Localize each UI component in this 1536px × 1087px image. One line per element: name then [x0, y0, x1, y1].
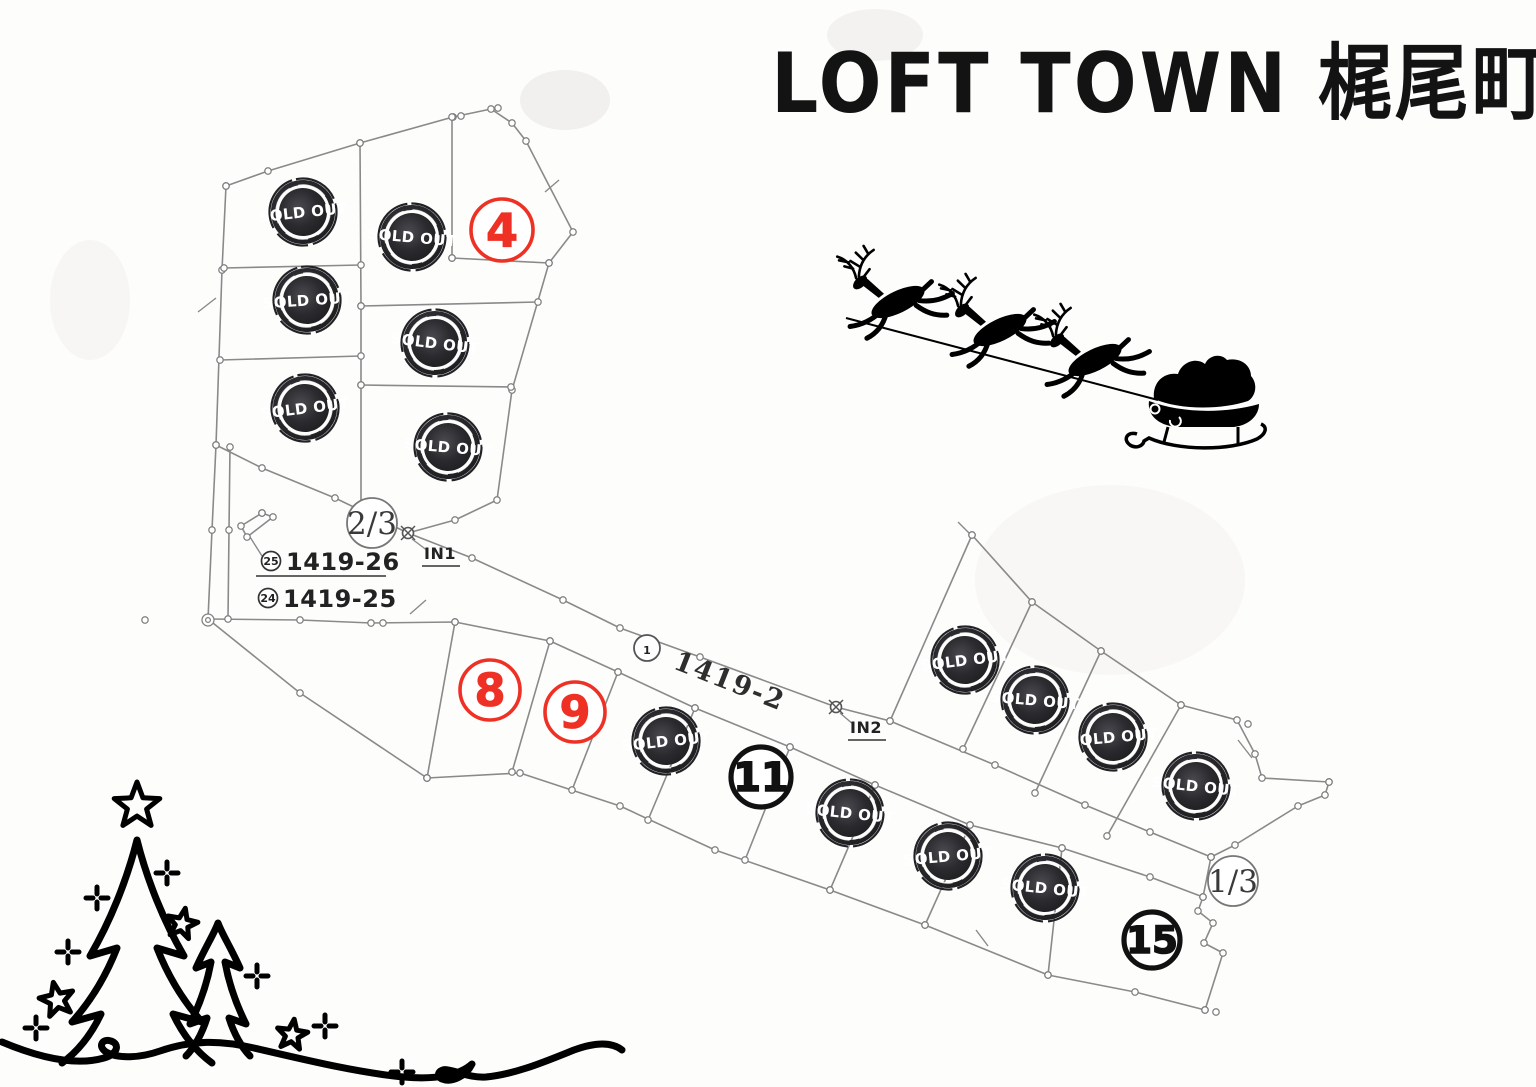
- svg-text:IN2: IN2: [850, 718, 882, 737]
- road-parcel-label: 11419-2: [634, 635, 790, 717]
- sold-out-stamp: SOLD OUT: [1066, 700, 1161, 775]
- sparkle-icon: [25, 1017, 47, 1039]
- flyer-canvas: 2/31/311419-2IN1IN2251419-26241419-25 SO…: [0, 0, 1536, 1087]
- sold-out-stamp: SOLD OUT: [618, 703, 714, 779]
- sold-out-stamp: SOLD OUT: [802, 775, 898, 851]
- star-icon: [278, 1019, 308, 1049]
- sold-out-stamp: SOLD OUT: [387, 304, 484, 381]
- svg-text:1419-2: 1419-2: [669, 646, 789, 718]
- sold-out-stamp: SOLD OUT: [401, 410, 496, 485]
- sold-out-stamp: SOLD OUT: [365, 200, 460, 275]
- sold-out-stamp: SOLD OUT: [257, 369, 354, 446]
- lot-number-15: 15: [1124, 912, 1180, 968]
- sold-out-stamp: SOLD OUT: [260, 263, 354, 336]
- sparkle-icon: [57, 941, 79, 963]
- sleigh-icon: [1126, 356, 1265, 448]
- lot-number-9: 9: [545, 682, 605, 742]
- sparkle-icon: [246, 965, 268, 987]
- svg-text:15: 15: [1126, 918, 1178, 962]
- junction-label: 1/3: [1208, 856, 1258, 906]
- svg-text:25: 25: [263, 555, 278, 568]
- entrance-marker: IN1: [401, 526, 460, 566]
- svg-text:IN1: IN1: [424, 544, 456, 563]
- lot-number-8: 8: [460, 660, 520, 720]
- junction-label: 2/3: [347, 498, 397, 548]
- svg-text:1/3: 1/3: [1208, 864, 1258, 900]
- parcel-ref-label: 241419-25: [259, 585, 397, 613]
- parcel-ref-label: 251419-26: [256, 548, 400, 576]
- svg-text:8: 8: [474, 664, 505, 717]
- svg-text:1419-25: 1419-25: [283, 585, 397, 613]
- star-icon: [39, 982, 73, 1016]
- svg-text:1419-26: 1419-26: [286, 548, 400, 576]
- svg-text:2/3: 2/3: [347, 506, 397, 542]
- svg-text:9: 9: [559, 686, 590, 739]
- page-title: LOFT TOWN 梶尾町: [771, 35, 1536, 132]
- svg-text:11: 11: [733, 755, 789, 801]
- svg-text:1: 1: [643, 644, 651, 657]
- sold-out-stamp: SOLD OUT: [255, 174, 351, 250]
- site-map: 2/31/311419-2IN1IN2251419-26241419-25 SO…: [0, 0, 1536, 1087]
- santa-sleigh-silhouette: [834, 230, 1265, 448]
- svg-text:4: 4: [486, 204, 518, 258]
- sold-out-stamp: SOLD OUT: [1148, 748, 1244, 824]
- sparkle-icon: [86, 887, 108, 909]
- svg-text:24: 24: [260, 592, 276, 605]
- sparkle-icon: [156, 862, 178, 884]
- star-icon: [114, 782, 160, 825]
- lot-number-11: 11: [731, 747, 791, 807]
- sold-out-stamp: SOLD OUT: [988, 663, 1083, 738]
- sold-out-stamp: SOLD OUT: [901, 819, 996, 894]
- sparkle-icon: [314, 1015, 336, 1037]
- christmas-trees-line-art: [2, 782, 622, 1083]
- star-icon: [168, 908, 198, 938]
- sold-out-stamp: SOLD OUT: [997, 850, 1093, 926]
- lot-number-4: 4: [471, 199, 533, 261]
- entrance-marker: IN2: [829, 700, 886, 740]
